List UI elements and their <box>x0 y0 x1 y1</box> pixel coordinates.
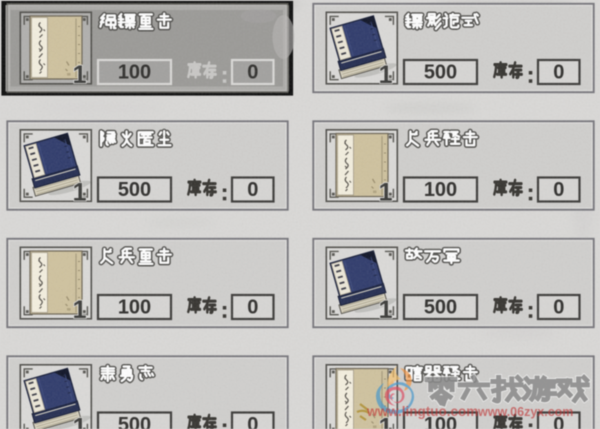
svg-text:www.06zyx.com: www.06zyx.com <box>477 405 573 419</box>
svg-text:www.lingtuo.com: www.lingtuo.com <box>366 404 478 419</box>
